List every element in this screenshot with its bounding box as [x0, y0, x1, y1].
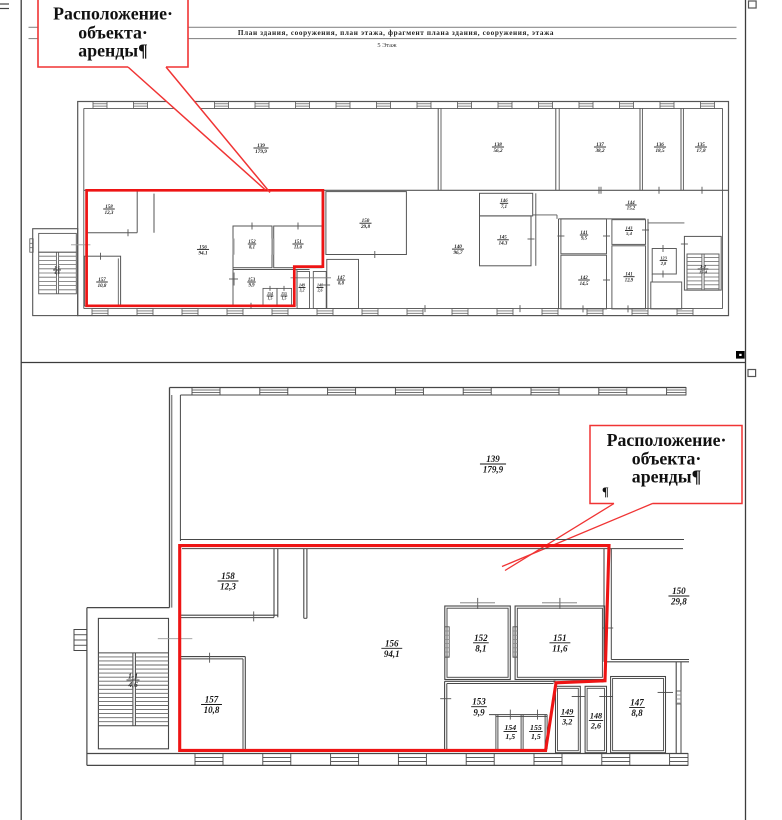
- svg-text:1,5: 1,5: [282, 297, 287, 301]
- svg-text:12,3: 12,3: [105, 211, 114, 216]
- svg-text:12,3: 12,3: [220, 582, 236, 592]
- svg-text:151: 151: [553, 633, 567, 643]
- svg-text:18,5: 18,5: [655, 148, 664, 154]
- svg-text:2,6: 2,6: [590, 721, 602, 730]
- svg-text:153: 153: [472, 697, 486, 707]
- svg-text:29,8: 29,8: [670, 597, 687, 607]
- svg-text:1,5: 1,5: [531, 732, 541, 741]
- svg-text:8,1: 8,1: [249, 246, 255, 251]
- svg-text:143: 143: [626, 225, 634, 230]
- svg-text:9,9: 9,9: [473, 707, 485, 717]
- svg-text:8,8: 8,8: [631, 708, 643, 718]
- svg-text:аренды¶: аренды¶: [632, 467, 701, 487]
- svg-text:1,5: 1,5: [505, 732, 515, 741]
- svg-text:158: 158: [221, 571, 235, 581]
- svg-text:11,6: 11,6: [294, 246, 303, 251]
- svg-text:9,5: 9,5: [581, 237, 588, 242]
- svg-text:3,2: 3,2: [561, 717, 572, 726]
- svg-text:94,1: 94,1: [198, 250, 207, 256]
- svg-text:объекта·: объекта·: [78, 22, 148, 42]
- svg-text:4,6: 4,6: [53, 270, 60, 275]
- svg-text:12,9: 12,9: [625, 278, 634, 283]
- svg-text:139: 139: [486, 454, 500, 464]
- svg-text:¶: ¶: [602, 485, 609, 499]
- svg-text:11,6: 11,6: [552, 643, 568, 653]
- svg-text:154: 154: [504, 723, 516, 732]
- svg-text:14,5: 14,5: [580, 282, 589, 287]
- svg-text:4,6: 4,6: [127, 680, 138, 689]
- svg-text:152: 152: [474, 633, 488, 643]
- svg-text:10,8: 10,8: [204, 705, 220, 715]
- svg-text:148: 148: [590, 712, 602, 721]
- svg-text:10,8: 10,8: [98, 284, 107, 289]
- svg-text:1,5: 1,5: [268, 297, 273, 301]
- svg-text:38,2: 38,2: [594, 148, 604, 154]
- svg-text:9,9: 9,9: [249, 284, 256, 289]
- svg-text:1-2: 1-2: [700, 264, 707, 269]
- svg-text:157: 157: [205, 695, 219, 705]
- svg-text:8,1: 8,1: [475, 643, 486, 653]
- svg-text:14,3: 14,3: [499, 242, 508, 247]
- svg-text:объекта·: объекта·: [632, 448, 702, 468]
- svg-text:94,1: 94,1: [384, 649, 400, 659]
- svg-text:96,7: 96,7: [453, 250, 462, 256]
- svg-text:5,4: 5,4: [626, 231, 632, 236]
- svg-text:Расположение·: Расположение·: [607, 430, 727, 450]
- svg-text:56,2: 56,2: [493, 148, 502, 154]
- svg-text:147: 147: [630, 698, 644, 708]
- svg-text:15,2: 15,2: [627, 207, 636, 212]
- svg-text:156: 156: [385, 638, 399, 648]
- svg-text:3,2: 3,2: [299, 287, 305, 292]
- svg-text:179,9: 179,9: [255, 149, 267, 155]
- svg-text:План здания, сооружения, план: План здания, сооружения, план этажа, фра…: [238, 29, 554, 37]
- svg-text:1-1: 1-1: [128, 671, 138, 680]
- svg-text:аренды¶: аренды¶: [78, 41, 147, 61]
- svg-text:155: 155: [530, 723, 542, 732]
- svg-text:17,8: 17,8: [696, 148, 705, 154]
- svg-text:150: 150: [672, 586, 686, 596]
- svg-text:15,4: 15,4: [699, 269, 708, 274]
- svg-text:29,8: 29,8: [360, 224, 370, 230]
- svg-text:179,9: 179,9: [483, 465, 504, 475]
- svg-text:2,8: 2,8: [660, 261, 667, 266]
- svg-text:2,6: 2,6: [317, 287, 323, 292]
- svg-text:5 Этаж: 5 Этаж: [377, 42, 397, 49]
- svg-text:149: 149: [561, 708, 573, 717]
- svg-text:7,1: 7,1: [501, 205, 507, 210]
- svg-text:Расположение·: Расположение·: [53, 4, 173, 24]
- svg-text:8,8: 8,8: [338, 282, 345, 287]
